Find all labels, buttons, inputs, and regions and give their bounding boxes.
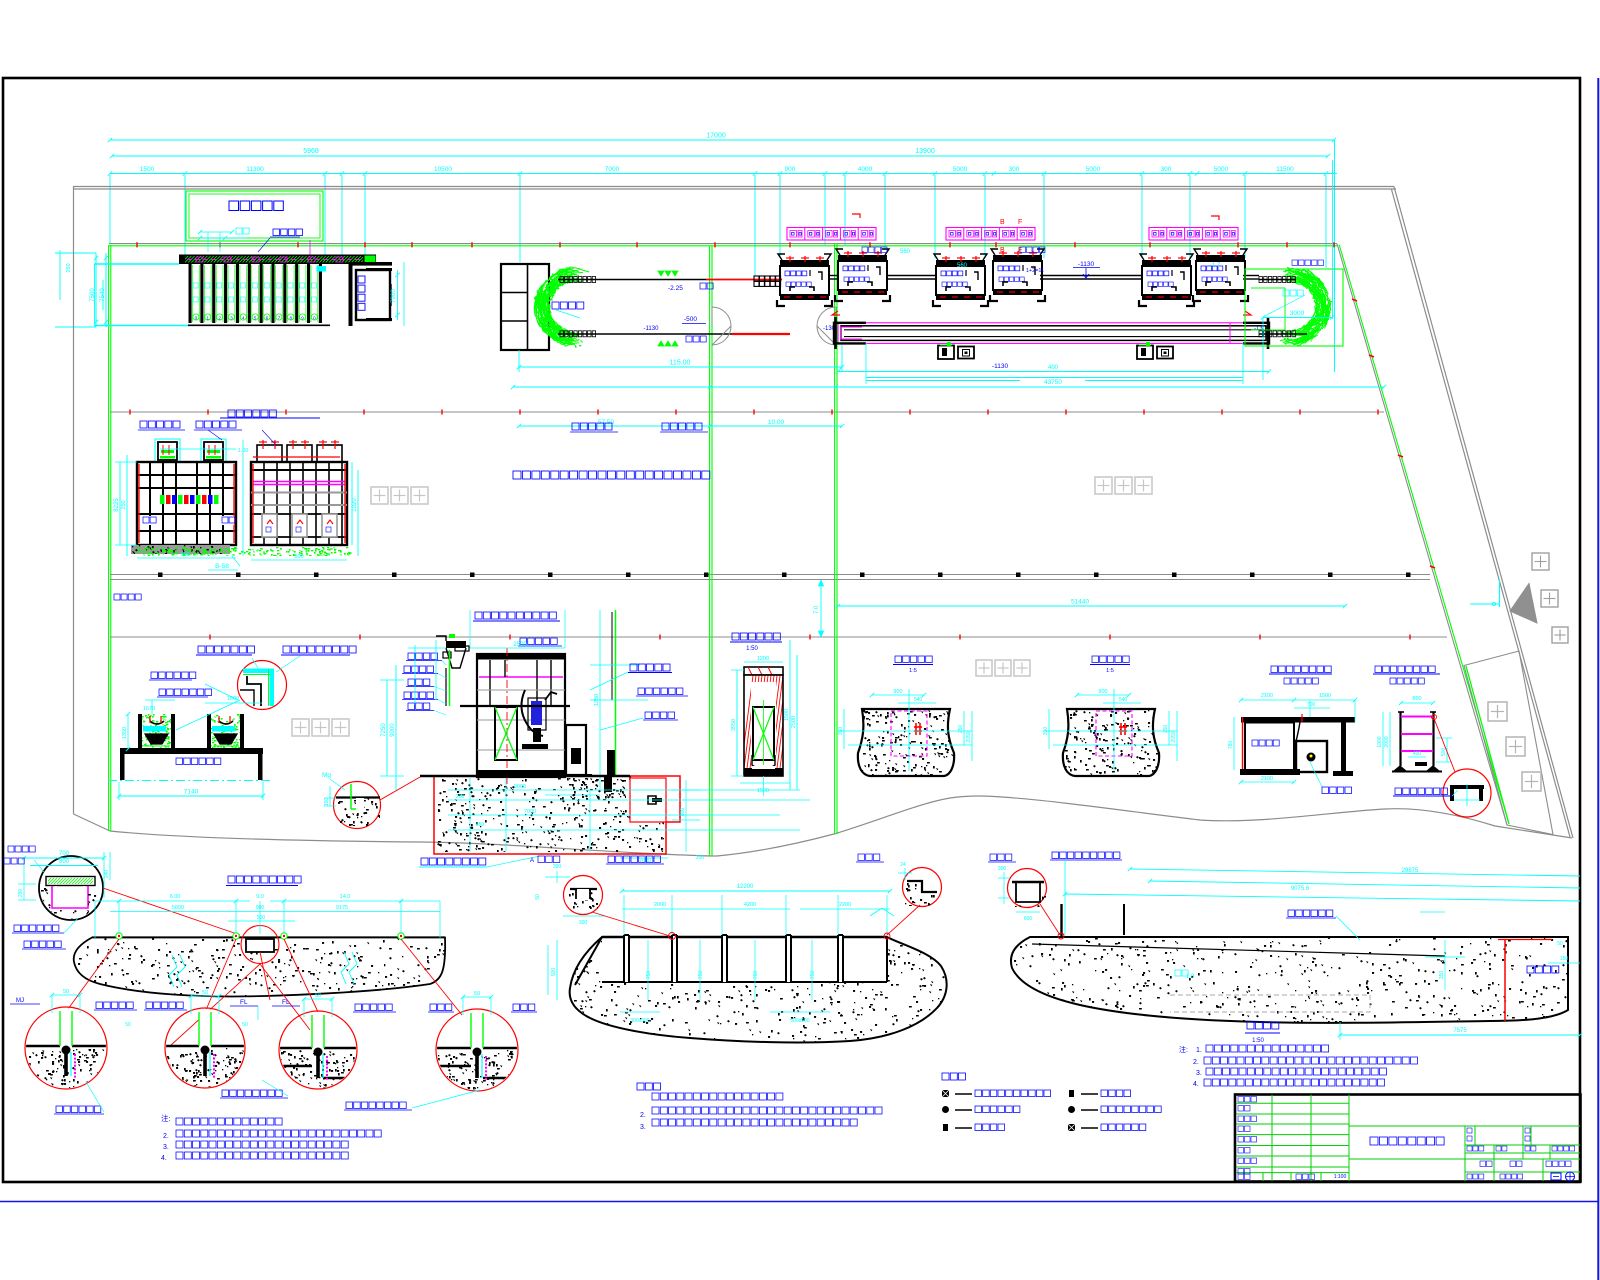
svg-text:350: 350 [838, 727, 844, 736]
svg-text:150: 150 [324, 798, 330, 807]
svg-text:6.00: 6.00 [170, 894, 181, 900]
svg-text:300: 300 [553, 864, 562, 870]
svg-text:560: 560 [900, 249, 911, 255]
svg-text:700: 700 [59, 851, 70, 857]
svg-text:1:100: 1:100 [1334, 1174, 1347, 1180]
svg-text:3.: 3. [1196, 1070, 1202, 1077]
svg-text:1500: 1500 [140, 166, 155, 173]
svg-text:500: 500 [257, 915, 266, 921]
svg-text:250: 250 [1163, 725, 1169, 734]
svg-text:2.: 2. [163, 1133, 169, 1140]
svg-text:7140: 7140 [184, 789, 199, 796]
svg-text:1:50: 1:50 [1252, 1038, 1264, 1044]
svg-text:300: 300 [998, 866, 1007, 872]
svg-text:-1130: -1130 [644, 326, 660, 332]
svg-text:7250: 7250 [381, 723, 387, 737]
svg-text:2100: 2100 [1261, 776, 1273, 782]
svg-text:4000: 4000 [858, 166, 873, 173]
svg-text:50: 50 [535, 894, 541, 900]
svg-text:650: 650 [476, 822, 485, 828]
svg-text:2200: 2200 [839, 902, 851, 908]
svg-text:4.: 4. [1193, 1081, 1199, 1088]
svg-text:400: 400 [1413, 751, 1422, 757]
svg-text:1670: 1670 [143, 706, 155, 712]
svg-text:5000: 5000 [1086, 166, 1101, 173]
svg-text:750: 750 [810, 971, 816, 980]
svg-text:7000: 7000 [524, 809, 536, 815]
svg-text:500: 500 [294, 554, 303, 560]
svg-text:29875: 29875 [1402, 868, 1419, 874]
svg-text:5800: 5800 [172, 905, 184, 911]
svg-text:1.00: 1.00 [238, 448, 249, 454]
svg-text:51440: 51440 [1071, 599, 1089, 606]
svg-text:3.: 3. [163, 1144, 169, 1151]
svg-text:8225: 8225 [114, 498, 120, 512]
svg-text:1020: 1020 [352, 498, 358, 512]
svg-text:3000: 3000 [1290, 310, 1305, 317]
svg-text:注:: 注: [161, 1113, 171, 1123]
svg-text:11300: 11300 [246, 166, 264, 173]
svg-text:2.: 2. [1193, 1059, 1199, 1066]
svg-text:350: 350 [1043, 727, 1049, 736]
svg-text:1500: 1500 [784, 709, 790, 721]
svg-text:2.: 2. [640, 1112, 646, 1119]
svg-text:800: 800 [1412, 696, 1421, 702]
svg-text:FL: FL [282, 999, 290, 1006]
svg-text:1200: 1200 [757, 656, 769, 662]
svg-text:2500: 2500 [513, 642, 527, 648]
svg-text:-500: -500 [684, 316, 697, 323]
svg-text:50: 50 [1557, 941, 1563, 947]
svg-text:115.00: 115.00 [670, 360, 691, 367]
svg-text:1:5: 1:5 [1106, 668, 1114, 674]
svg-text:900: 900 [785, 166, 796, 173]
svg-text:Mg: Mg [322, 772, 331, 779]
svg-text:900: 900 [893, 689, 902, 695]
svg-text:9175: 9175 [336, 905, 348, 911]
svg-text:500x500: 500x500 [790, 1018, 809, 1024]
svg-text:250: 250 [958, 725, 964, 734]
svg-text:3.: 3. [640, 1124, 646, 1131]
svg-text:2000: 2000 [654, 902, 666, 908]
svg-text:7000: 7000 [605, 166, 620, 173]
svg-text:FL: FL [240, 999, 248, 1006]
svg-text:1:5: 1:5 [909, 668, 917, 674]
svg-text:1500: 1500 [1319, 693, 1331, 699]
svg-text:560: 560 [957, 263, 968, 269]
svg-text:200: 200 [456, 794, 465, 800]
svg-text:-1.7: -1.7 [1210, 263, 1221, 269]
svg-text:2500: 2500 [791, 716, 797, 728]
svg-text:3950: 3950 [731, 719, 737, 731]
svg-text:300: 300 [579, 920, 588, 926]
svg-text:1:50: 1:50 [746, 646, 758, 652]
svg-text:MJ: MJ [16, 998, 24, 1004]
svg-text:1800: 1800 [1377, 736, 1383, 747]
svg-text:7900: 7900 [391, 289, 397, 303]
svg-text:F: F [1018, 219, 1022, 226]
svg-text:10500: 10500 [434, 166, 452, 173]
svg-text:50: 50 [63, 989, 69, 995]
svg-text:7575: 7575 [1453, 1028, 1467, 1034]
svg-text:11500: 11500 [1276, 166, 1294, 173]
svg-text:240: 240 [104, 870, 110, 879]
svg-text:150: 150 [1560, 956, 1569, 962]
svg-text:540: 540 [914, 697, 923, 703]
svg-text:600: 600 [1024, 916, 1033, 922]
svg-text:50: 50 [474, 991, 480, 997]
svg-text:5968: 5968 [303, 148, 319, 155]
svg-text:750: 750 [698, 971, 704, 980]
svg-text:9000: 9000 [390, 723, 396, 737]
svg-text:250: 250 [121, 500, 127, 509]
svg-text:24: 24 [900, 862, 906, 868]
svg-text:14.0: 14.0 [340, 894, 351, 900]
svg-text:10.00: 10.00 [768, 419, 785, 426]
svg-text:250: 250 [18, 889, 24, 898]
svg-text:4200: 4200 [744, 902, 756, 908]
svg-text:9.0: 9.0 [256, 894, 264, 900]
svg-text:300x300: 300x300 [630, 1018, 649, 1024]
svg-text:5000: 5000 [1214, 166, 1229, 173]
svg-text:500: 500 [551, 968, 557, 977]
svg-text:50: 50 [242, 1022, 248, 1028]
svg-text:200: 200 [696, 855, 705, 861]
svg-text:9000: 9000 [514, 784, 526, 790]
svg-text:17000: 17000 [706, 133, 726, 140]
svg-text:540: 540 [1119, 697, 1128, 703]
svg-text:B-58: B-58 [215, 563, 229, 570]
svg-text:300: 300 [1161, 166, 1172, 173]
svg-text:50: 50 [125, 1022, 131, 1028]
svg-text:50: 50 [202, 990, 208, 996]
svg-text:800: 800 [59, 859, 70, 865]
svg-text:900: 900 [1098, 689, 1107, 695]
svg-text:1+2=11: 1+2=11 [1026, 268, 1044, 274]
svg-text:43750: 43750 [1044, 379, 1062, 386]
svg-text:500: 500 [180, 552, 189, 558]
svg-text:5000: 5000 [953, 166, 968, 173]
svg-text:250: 250 [66, 263, 72, 272]
svg-text:4.: 4. [161, 1155, 167, 1162]
svg-text:9075.6: 9075.6 [1291, 886, 1310, 892]
svg-text:1250: 1250 [594, 694, 600, 706]
svg-text:-2.25: -2.25 [668, 285, 683, 292]
svg-text:2050: 2050 [966, 731, 972, 742]
svg-text:注:: 注: [1179, 1045, 1188, 1054]
svg-text:2100: 2100 [1261, 693, 1273, 699]
svg-text:50: 50 [315, 993, 321, 999]
svg-text:-1130: -1130 [1078, 261, 1095, 268]
svg-text:800: 800 [680, 808, 686, 817]
svg-text:A: A [530, 858, 534, 864]
svg-text:-1130: -1130 [992, 363, 1009, 370]
svg-text:1350: 1350 [122, 727, 128, 739]
svg-text:2000: 2000 [1384, 736, 1390, 747]
svg-text:B: B [1000, 219, 1005, 226]
svg-text:7500: 7500 [90, 288, 96, 302]
svg-text:750: 750 [646, 971, 652, 980]
svg-text:700: 700 [1307, 702, 1316, 708]
svg-text:350: 350 [1439, 971, 1445, 980]
svg-text:13900: 13900 [915, 148, 935, 155]
svg-text:750: 750 [753, 971, 759, 980]
svg-text:1500: 1500 [757, 788, 769, 794]
svg-text:7.0: 7.0 [814, 605, 820, 614]
svg-text:B: B [1000, 247, 1005, 254]
svg-text:1:8: 1:8 [1186, 974, 1195, 980]
svg-text:2050: 2050 [1171, 731, 1177, 742]
svg-text:1.: 1. [1196, 1047, 1202, 1054]
svg-text:12200: 12200 [737, 884, 754, 890]
svg-text:400: 400 [1048, 365, 1059, 371]
svg-text:780: 780 [1228, 741, 1234, 750]
svg-text:300: 300 [1009, 166, 1020, 173]
